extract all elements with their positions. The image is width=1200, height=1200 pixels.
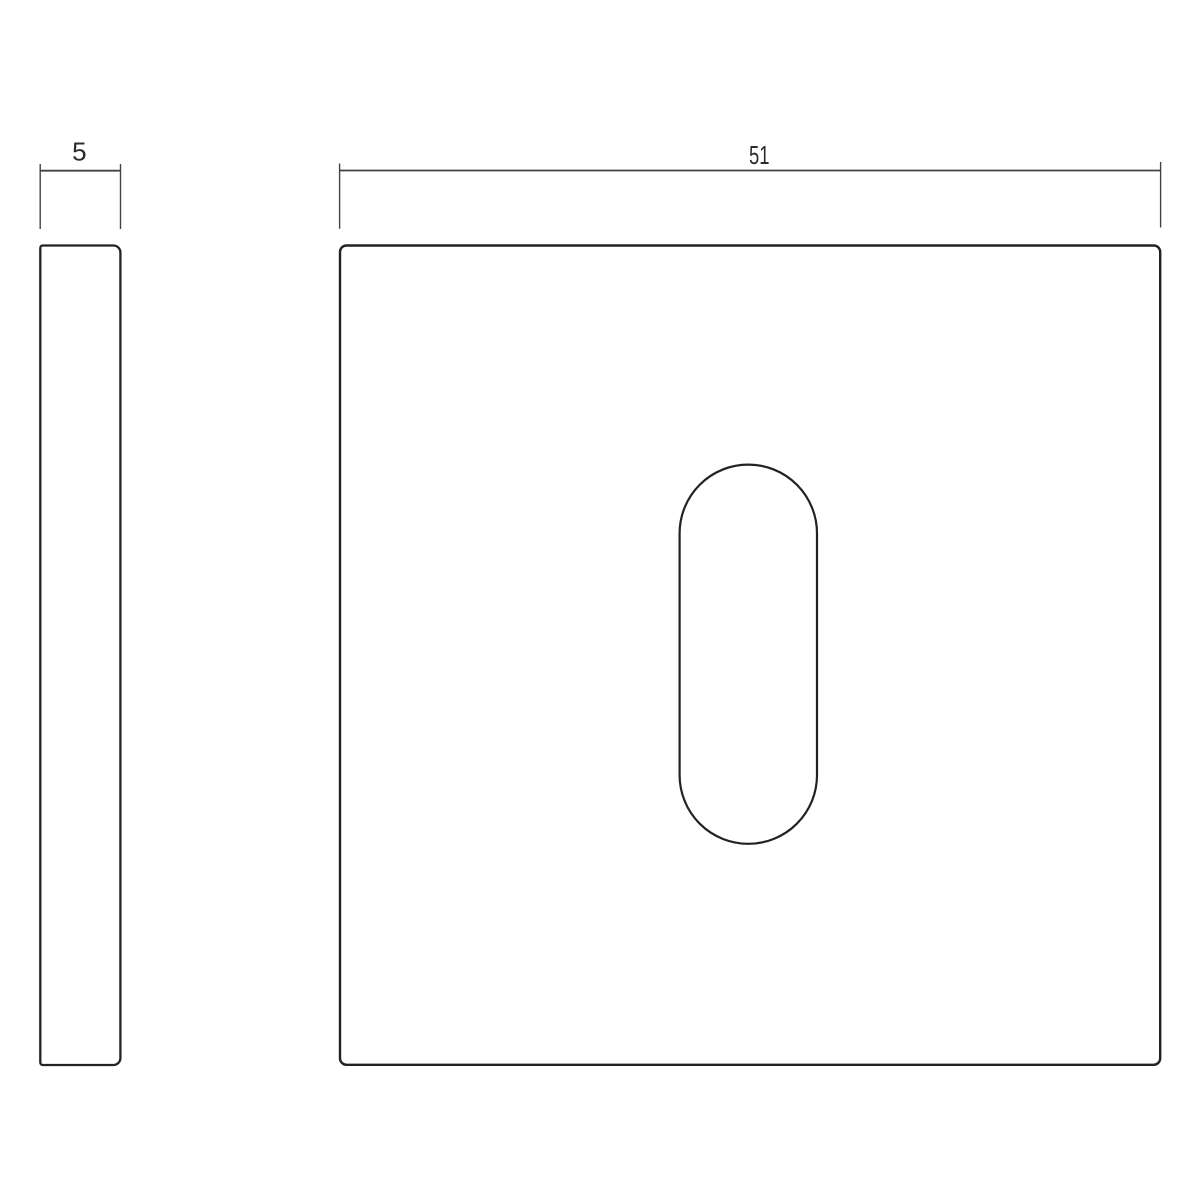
svg-text:51: 51 (749, 140, 770, 170)
svg-text:5: 5 (72, 137, 86, 167)
